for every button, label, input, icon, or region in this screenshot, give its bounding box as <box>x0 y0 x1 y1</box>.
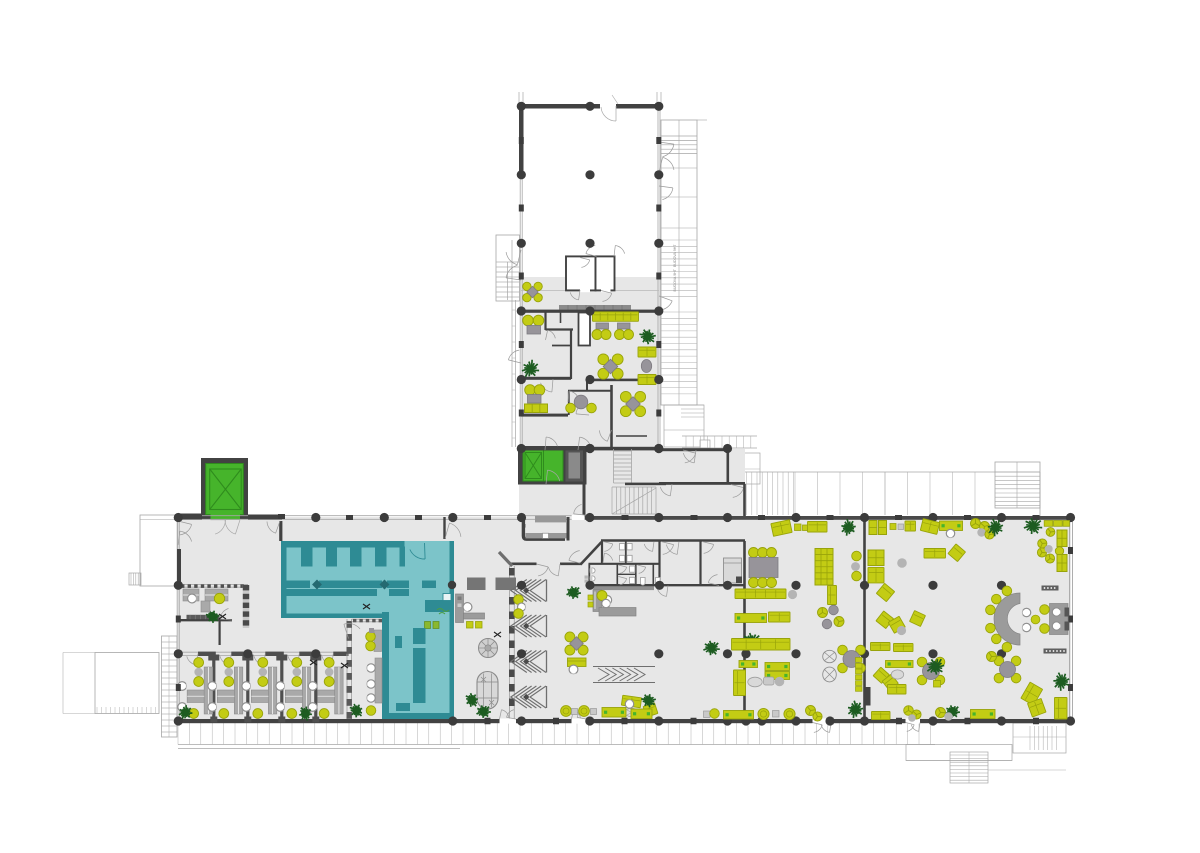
svg-text:BUDOVA 9HT BUDOVA 9HT: BUDOVA 9HT BUDOVA 9HT <box>673 244 677 292</box>
